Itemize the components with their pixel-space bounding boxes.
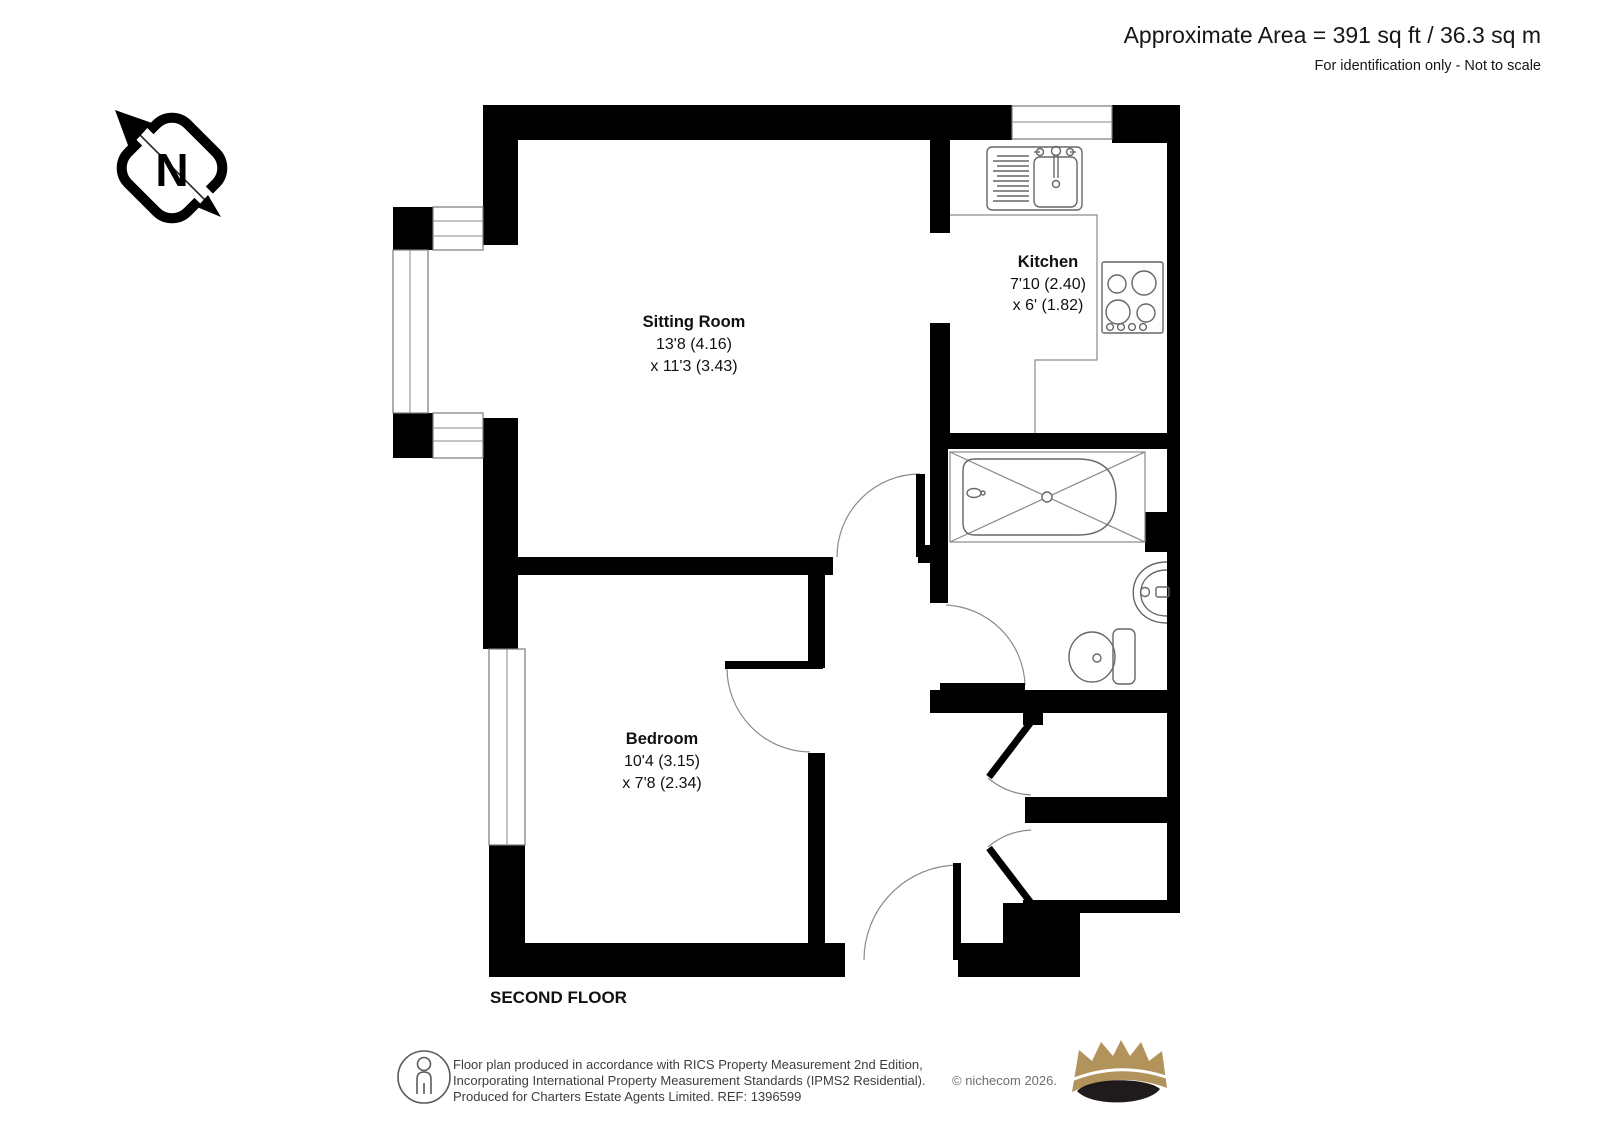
bay-window-bottom (433, 413, 483, 458)
sitting-room-door (837, 474, 925, 557)
basin-icon (1133, 562, 1169, 623)
svg-text:x 11'3 (3.43): x 11'3 (3.43) (650, 358, 737, 375)
entry-door (864, 863, 961, 960)
bedroom-window (489, 649, 525, 845)
svg-text:Bedroom: Bedroom (626, 730, 698, 748)
header: Approximate Area = 391 sq ft / 36.3 sq m… (1124, 22, 1541, 74)
footer-line1: Floor plan produced in accordance with R… (453, 1057, 923, 1072)
toilet-icon (1069, 629, 1135, 684)
person-scale-icon (398, 1051, 450, 1103)
footer-line3: Produced for Charters Estate Agents Limi… (453, 1089, 801, 1104)
cupboard-door-bottom (988, 830, 1031, 903)
bedroom-door (725, 661, 823, 752)
hob-icon (1102, 262, 1163, 333)
kitchen-label: Kitchen 7'10 (2.40) x 6' (1.82) (1010, 253, 1086, 314)
bedroom-label: Bedroom 10'4 (3.15) x 7'8 (2.34) (622, 730, 702, 792)
worktop-outline (950, 215, 1097, 433)
svg-text:Kitchen: Kitchen (1018, 253, 1079, 271)
kitchen-sink-icon (987, 147, 1082, 211)
north-arrow: N (113, 109, 232, 228)
identification-note: For identification only - Not to scale (1315, 58, 1541, 74)
svg-text:x 6' (1.82): x 6' (1.82) (1013, 297, 1084, 314)
bathroom-door (940, 605, 1025, 691)
floorplan-page: N Approximate Area = 391 sq ft / 36.3 sq… (0, 0, 1600, 1131)
sitting-room-label: Sitting Room 13'8 (4.16) x 11'3 (3.43) (643, 313, 746, 375)
approx-area-label: Approximate Area = 391 sq ft / 36.3 sq m (1124, 22, 1541, 48)
charters-crown-logo (1069, 1040, 1169, 1102)
doors (725, 474, 1031, 960)
svg-text:10'4 (3.15): 10'4 (3.15) (624, 753, 700, 770)
floorplan-canvas: N Approximate Area = 391 sq ft / 36.3 sq… (0, 0, 1600, 1131)
walls (393, 105, 1180, 977)
bath-icon (950, 452, 1145, 542)
svg-text:7'10 (2.40): 7'10 (2.40) (1010, 276, 1086, 293)
svg-text:13'8 (4.16): 13'8 (4.16) (656, 336, 732, 353)
kitchen-window (1012, 106, 1112, 139)
room-labels: Sitting Room 13'8 (4.16) x 11'3 (3.43) K… (490, 253, 1086, 1007)
footer-line2: Incorporating International Property Mea… (453, 1073, 926, 1088)
bay-window-west (393, 250, 428, 413)
footer: Floor plan produced in accordance with R… (398, 1040, 1169, 1104)
svg-text:x 7'8 (2.34): x 7'8 (2.34) (622, 775, 702, 792)
footer-copyright: © nichecom 2026. (952, 1073, 1057, 1088)
floor-title: SECOND FLOOR (490, 988, 627, 1007)
compass-n-label: N (155, 144, 188, 196)
svg-text:Sitting Room: Sitting Room (643, 313, 746, 331)
cupboard-door-top (988, 722, 1031, 795)
bay-window-top (433, 207, 483, 250)
bathroom-fixtures (950, 452, 1169, 684)
